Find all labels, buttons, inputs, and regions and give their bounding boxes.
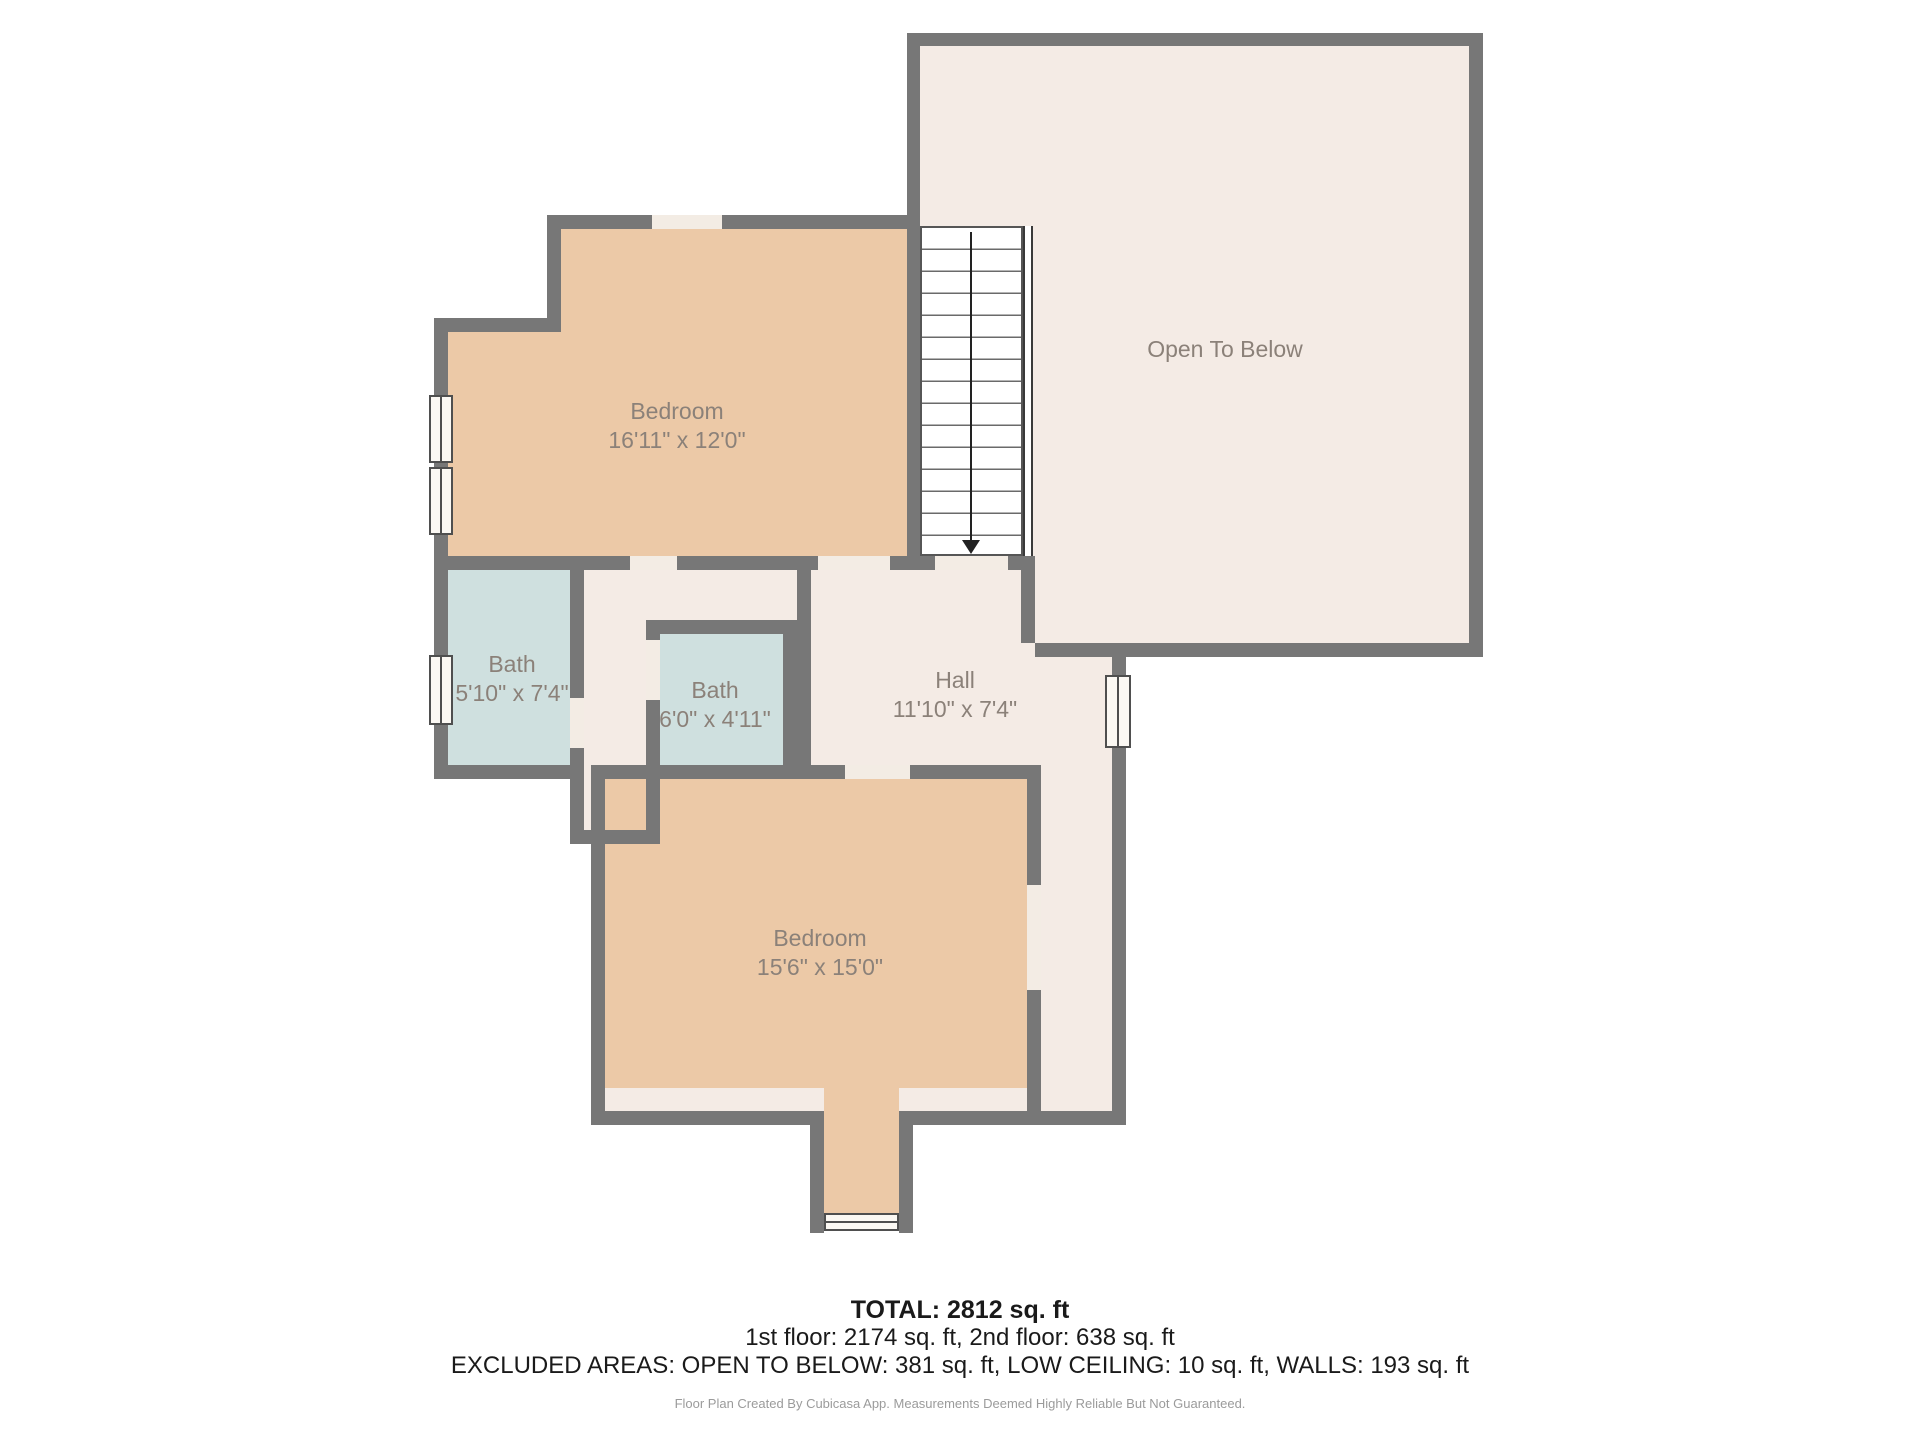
wall-segment — [907, 46, 920, 227]
disclaimer-text: Floor Plan Created By Cubicasa App. Meas… — [0, 1396, 1920, 1412]
wall-segment — [907, 227, 920, 570]
door-opening — [646, 640, 660, 700]
door-opening — [845, 765, 910, 779]
stairs-down-arrow-icon — [962, 540, 980, 554]
wall-segment — [797, 765, 845, 779]
excluded-areas-text: EXCLUDED AREAS: OPEN TO BELOW: 381 sq. f… — [0, 1352, 1920, 1380]
wall-segment — [434, 318, 561, 332]
room-dims: 16'11" x 12'0" — [608, 426, 745, 455]
room-dims: 6'0" x 4'11" — [659, 705, 771, 734]
room-bedroom-upper-extension — [448, 332, 561, 556]
wall-segment — [646, 620, 797, 634]
wall-segment — [1112, 657, 1126, 675]
door-opening — [818, 556, 890, 570]
wall-segment — [570, 570, 584, 698]
room-dims: 5'10" x 7'4" — [455, 679, 568, 708]
wall-segment — [890, 556, 935, 570]
room-label-bedroom-lower: Bedroom 15'6" x 15'0" — [757, 924, 883, 982]
room-dims: 15'6" x 15'0" — [757, 953, 883, 982]
wall-segment — [810, 1111, 824, 1233]
low-ceiling-strip-right — [899, 1088, 1027, 1111]
bay-nook — [824, 1088, 899, 1213]
wall-segment — [899, 1111, 913, 1233]
room-dims: 11'10" x 7'4" — [893, 695, 1017, 724]
room-name: Bath — [659, 676, 771, 705]
wall-segment — [899, 1111, 1126, 1125]
wall-segment — [591, 1111, 824, 1125]
room-label-bath-left: Bath 5'10" x 7'4" — [455, 650, 568, 708]
wall-segment — [910, 765, 1041, 779]
room-name: Bath — [455, 650, 568, 679]
door-opening — [652, 215, 722, 229]
room-label-open-to-below: Open To Below — [1147, 335, 1303, 364]
floor-areas-text: 1st floor: 2174 sq. ft, 2nd floor: 638 s… — [0, 1324, 1920, 1352]
room-name: Bedroom — [608, 397, 745, 426]
room-label-bath-middle: Bath 6'0" x 4'11" — [659, 676, 771, 734]
area-summary: TOTAL: 2812 sq. ft 1st floor: 2174 sq. f… — [0, 1296, 1920, 1412]
wall-segment — [1112, 748, 1126, 1125]
wall-segment — [1021, 570, 1035, 643]
room-label-bedroom-upper: Bedroom 16'11" x 12'0" — [608, 397, 745, 455]
window — [429, 655, 453, 725]
window — [429, 395, 453, 463]
wall-segment — [547, 215, 561, 332]
total-area-text: TOTAL: 2812 sq. ft — [0, 1296, 1920, 1324]
wall-segment — [547, 215, 652, 229]
wall-segment — [797, 556, 811, 779]
door-opening — [1027, 885, 1041, 990]
door-opening — [630, 556, 677, 570]
wall-segment — [591, 765, 797, 779]
wall-segment — [1008, 556, 1035, 570]
door-opening — [570, 698, 584, 748]
window — [429, 467, 453, 535]
wall-segment — [434, 556, 630, 570]
wall-segment — [1469, 33, 1483, 657]
wall-segment — [907, 33, 1483, 46]
room-label-hall: Hall 11'10" x 7'4" — [893, 666, 1017, 724]
window — [824, 1213, 899, 1231]
closet-right-strip — [1041, 657, 1112, 1111]
staircase-rail — [1023, 226, 1033, 556]
wall-segment — [1035, 643, 1483, 657]
room-bedroom-upper — [561, 229, 907, 556]
wall-segment — [591, 765, 605, 1125]
wall-segment — [1027, 765, 1041, 885]
room-name: Open To Below — [1147, 335, 1303, 364]
floor-plan: Bedroom 16'11" x 12'0" Open To Below Bat… — [0, 0, 1920, 1440]
wall-segment — [1027, 990, 1041, 1111]
wall-segment — [783, 620, 797, 779]
room-name: Bedroom — [757, 924, 883, 953]
wall-segment — [434, 765, 584, 779]
stairs-direction-line — [970, 232, 972, 542]
room-name: Hall — [893, 666, 1017, 695]
low-ceiling-strip-left — [605, 1088, 824, 1111]
window — [1105, 675, 1131, 748]
door-opening — [935, 556, 1008, 570]
wall-segment — [722, 215, 920, 229]
